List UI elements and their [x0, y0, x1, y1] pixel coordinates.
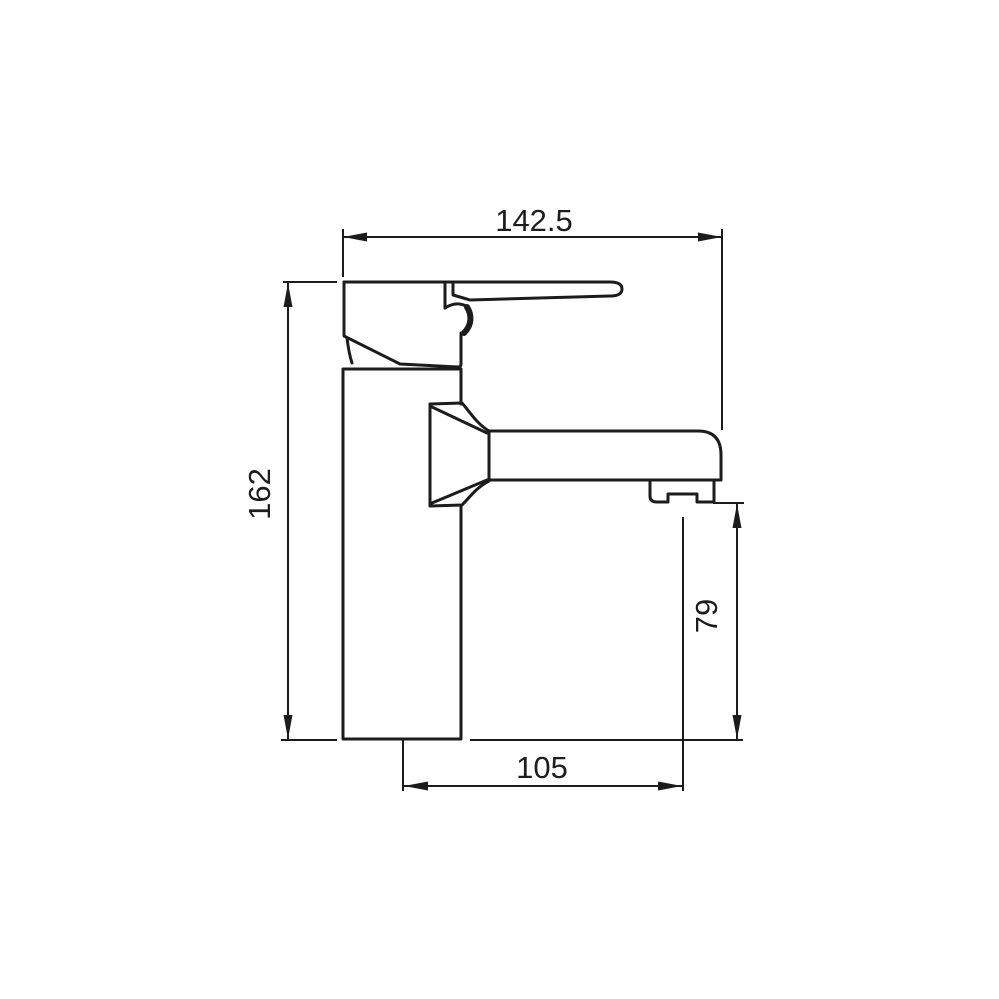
cartridge-curve	[445, 304, 466, 308]
body-column	[343, 369, 461, 739]
arrowhead-bottom	[733, 715, 742, 739]
lever-hinge-joint	[464, 307, 470, 333]
spout	[489, 431, 721, 480]
spout-flange-edge-bottom	[432, 480, 487, 503]
arrowhead-bottom	[284, 715, 293, 739]
handle-base	[344, 282, 461, 367]
faucet-outline	[343, 282, 721, 739]
arrowhead-left	[404, 782, 428, 791]
outlet-height-label: 79	[689, 599, 724, 633]
handle-lever	[344, 282, 622, 300]
overall-width-label: 142.5	[495, 203, 573, 238]
dimension-spout-reach: 105	[403, 517, 683, 791]
arrowhead-top	[284, 283, 293, 307]
faucet-dimension-drawing: 142.5 162 79 105	[0, 0, 999, 999]
spout-flange-edge-top	[432, 407, 487, 433]
spout-reach-label: 105	[516, 750, 568, 785]
dimension-overall-height: 162	[242, 282, 337, 740]
dimension-overall-width: 142.5	[343, 203, 722, 430]
technical-drawing-page: 142.5 162 79 105	[0, 0, 999, 999]
arrowhead-right	[698, 233, 722, 242]
arrowhead-left	[343, 233, 367, 242]
overall-height-label: 162	[242, 468, 277, 520]
aerator	[650, 480, 714, 502]
arrowhead-right	[658, 782, 682, 791]
handle-base-arc	[347, 338, 352, 363]
dimension-outlet-height: 79	[470, 503, 744, 740]
arrowhead-top	[733, 504, 742, 528]
